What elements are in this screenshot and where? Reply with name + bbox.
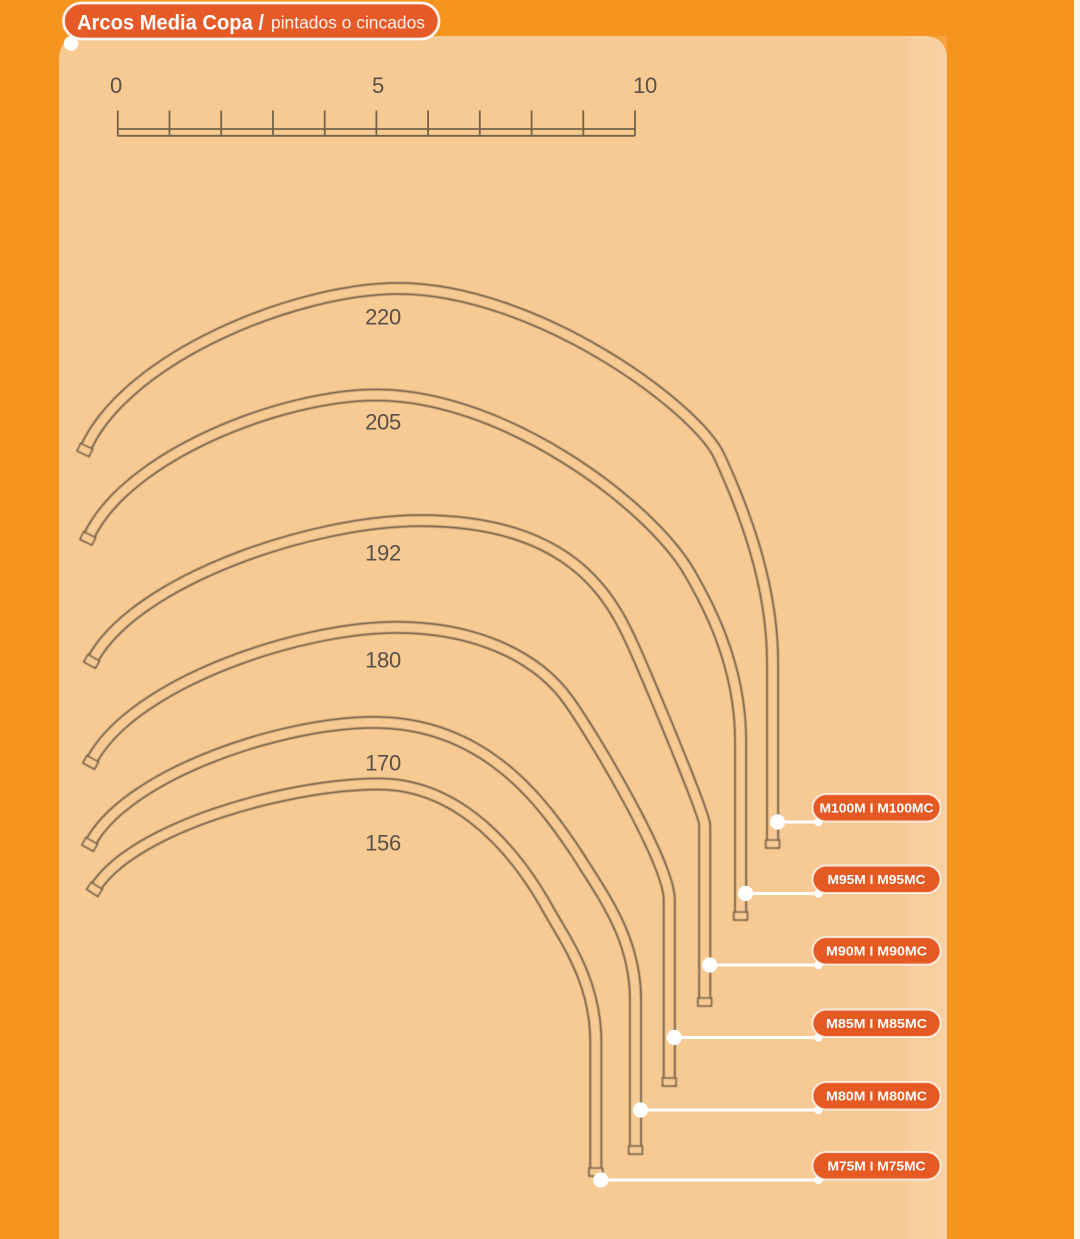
svg-text:180: 180 [365, 648, 401, 673]
svg-text:0: 0 [110, 73, 122, 98]
svg-text:Arcos Media Copa /: Arcos Media Copa / [77, 11, 264, 35]
svg-text:10: 10 [633, 73, 657, 98]
svg-text:M90M I M90MC: M90M I M90MC [826, 944, 927, 959]
svg-text:5: 5 [372, 73, 384, 98]
svg-text:M95M I M95MC: M95M I M95MC [828, 872, 926, 887]
svg-text:205: 205 [365, 410, 401, 435]
svg-text:M75M I M75MC: M75M I M75MC [828, 1159, 926, 1174]
svg-text:M85M I M85MC: M85M I M85MC [826, 1016, 927, 1031]
svg-text:170: 170 [365, 751, 401, 776]
svg-text:pintados o cincados: pintados o cincados [271, 13, 425, 33]
svg-text:M80M I M80MC: M80M I M80MC [826, 1089, 927, 1104]
svg-text:M100M I M100MC: M100M I M100MC [820, 801, 934, 816]
svg-text:220: 220 [365, 305, 401, 330]
svg-text:156: 156 [365, 831, 401, 856]
svg-text:192: 192 [365, 541, 401, 566]
